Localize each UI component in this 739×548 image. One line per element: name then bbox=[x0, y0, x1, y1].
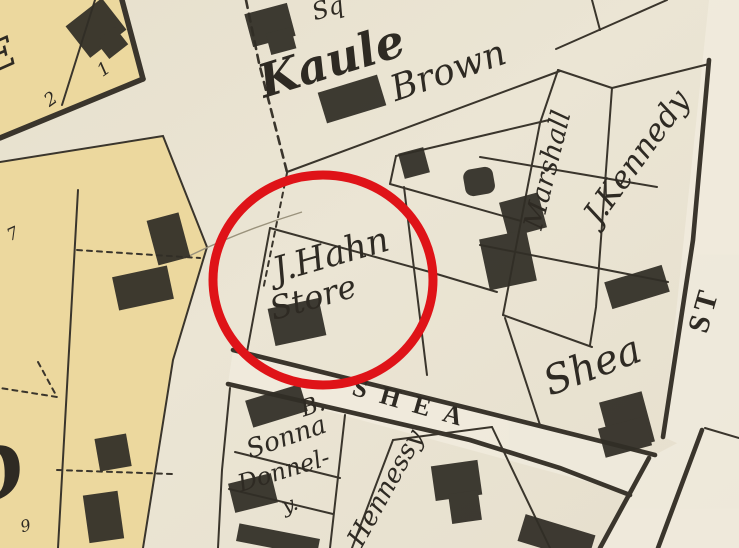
building bbox=[83, 491, 124, 543]
historic-plat-map: Sq Kaule Brown J.Hahn Store Marshall J.K… bbox=[0, 0, 739, 548]
building bbox=[94, 433, 131, 471]
building bbox=[448, 490, 482, 524]
map-canvas: Sq Kaule Brown J.Hahn Store Marshall J.K… bbox=[0, 0, 739, 548]
